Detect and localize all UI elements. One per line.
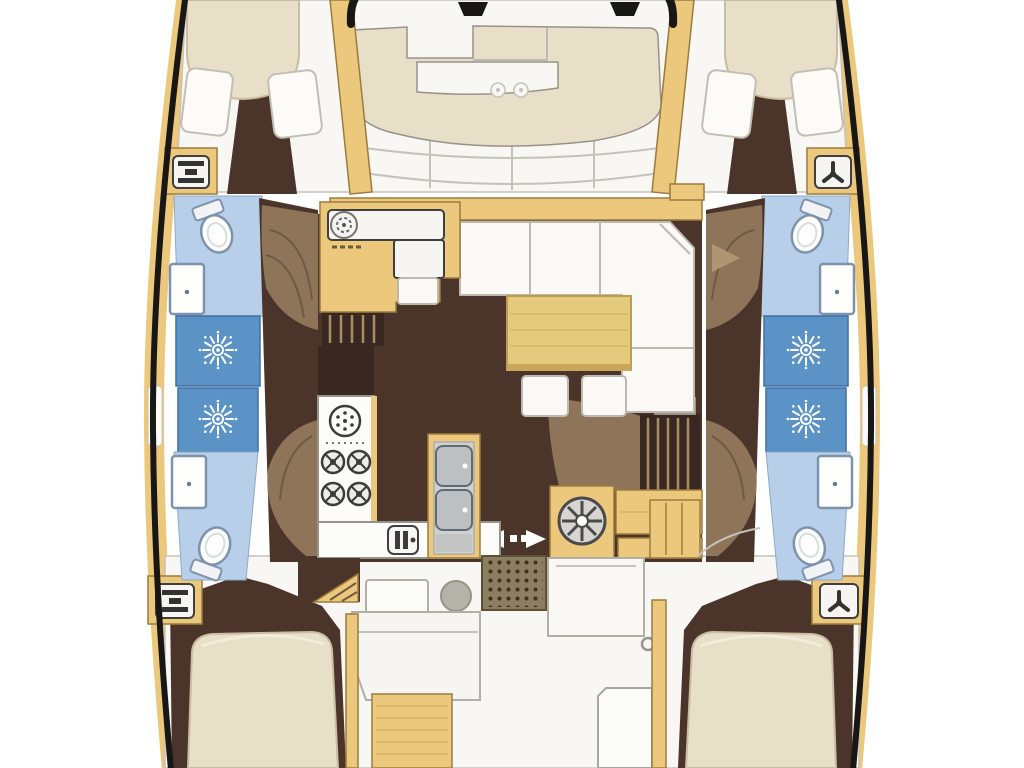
- shower-rose-icon: [199, 331, 238, 370]
- floor-plan-page: [0, 0, 1024, 768]
- galley-locker-dark: [318, 346, 374, 398]
- port-aft-head: [172, 452, 258, 581]
- foredeck-lounge: [352, 0, 672, 192]
- stove-icon: [318, 396, 377, 524]
- port-forward-head: [170, 196, 268, 316]
- starboard-bow-cabin: [652, 0, 859, 194]
- burner-icon: [322, 451, 344, 473]
- galley-sink-unit: [428, 434, 480, 558]
- pillow: [790, 67, 843, 136]
- catamaran-floor-plan: [0, 0, 1024, 768]
- port-aft-stairs: [298, 558, 360, 602]
- cockpit-divider-port: [346, 614, 358, 768]
- cockpit-bench-port: [352, 612, 480, 700]
- faucet-dot: [187, 482, 191, 486]
- salon-table: [507, 296, 631, 371]
- starboard-forward-head: [756, 196, 854, 316]
- shower-rose-icon: [787, 400, 826, 439]
- faucet-dot: [833, 482, 837, 486]
- starboard-shower: [764, 316, 848, 452]
- louver-locker-port: [322, 312, 384, 346]
- aft-berth-port: [188, 632, 338, 768]
- nav-seat: [550, 486, 614, 558]
- sink-drainer: [436, 534, 472, 552]
- galley-side-section: [394, 240, 444, 278]
- starboard-aft-stairs: [650, 500, 700, 558]
- burner-icon: [348, 451, 370, 473]
- beam-cap: [670, 184, 704, 200]
- companionway-steps: [482, 556, 546, 610]
- burner-icon: [322, 483, 344, 505]
- transom-box: [598, 688, 652, 768]
- port-aft-cabin: [148, 576, 346, 768]
- faucet-dot: [185, 290, 189, 294]
- cup-holder-dot: [519, 88, 523, 92]
- aft-berth-starboard: [686, 632, 836, 768]
- faucet-dot: [835, 290, 839, 294]
- cockpit-divider-starboard: [652, 600, 666, 768]
- helm-seat: [441, 581, 471, 611]
- pillow: [267, 69, 322, 138]
- ottoman: [522, 376, 568, 416]
- port-shower: [176, 316, 260, 452]
- cup-holder-dot: [496, 88, 500, 92]
- sink-icon: [170, 264, 204, 314]
- cockpit-bench-wood: [372, 694, 452, 768]
- pillow: [180, 67, 233, 136]
- galley-appliance-icon: [388, 526, 418, 554]
- starboard-aft-head: [766, 452, 852, 581]
- sink-icon: [820, 264, 854, 314]
- ottoman: [582, 376, 626, 416]
- shower-rose-icon: [199, 400, 238, 439]
- shower-rose-icon: [787, 331, 826, 370]
- galley-seat: [398, 278, 438, 304]
- port-bow-cabin: [165, 0, 372, 194]
- starboard-aft-cabin: [678, 576, 866, 768]
- pillow: [701, 69, 756, 138]
- cockpit-counter: [548, 558, 654, 650]
- louver-locker-starboard: [640, 414, 700, 494]
- burner-icon: [348, 483, 370, 505]
